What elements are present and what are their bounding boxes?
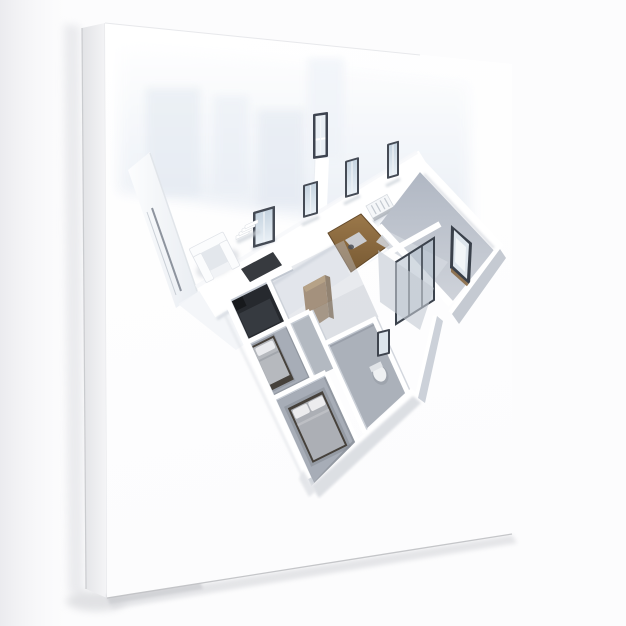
product-photo-stage <box>0 0 626 626</box>
backwall-ghost-window <box>214 96 248 192</box>
canvas-print-mockup-image <box>0 0 626 626</box>
backwall-ghost-window <box>258 110 304 206</box>
bath-window-glass <box>379 331 388 354</box>
hall-chair <box>348 245 354 250</box>
